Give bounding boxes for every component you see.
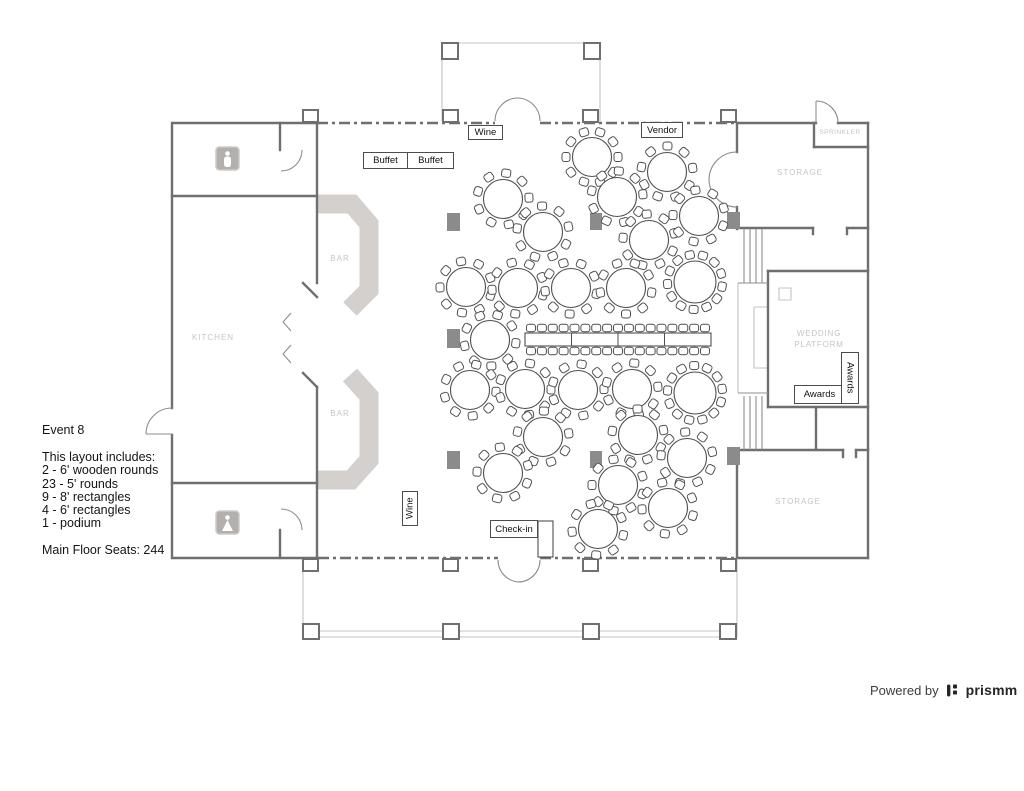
porch-post	[443, 559, 458, 571]
chair	[654, 258, 666, 269]
chair	[478, 449, 490, 461]
chair	[485, 217, 497, 228]
chair	[547, 301, 559, 313]
chair	[485, 369, 497, 381]
chair	[663, 279, 672, 289]
round-table-5ft[interactable]	[513, 202, 574, 262]
chair	[690, 324, 699, 332]
chair	[565, 166, 577, 178]
check-in-table-label[interactable]: Check-in	[490, 520, 538, 538]
table-top	[447, 268, 486, 307]
chair	[660, 529, 670, 538]
chair	[707, 446, 717, 457]
chair	[663, 433, 675, 445]
chair	[618, 530, 628, 541]
table-top	[499, 269, 538, 308]
table-top	[674, 261, 716, 303]
round-table-5ft[interactable]	[473, 169, 533, 230]
chair	[701, 363, 713, 374]
table-top	[579, 510, 618, 549]
chair	[646, 347, 655, 355]
chair	[668, 324, 677, 332]
table-top	[559, 371, 598, 410]
chair	[684, 415, 694, 425]
door-or-stair	[283, 345, 291, 363]
chair	[701, 301, 713, 312]
table-top	[484, 180, 523, 219]
chair	[705, 464, 716, 476]
chair	[657, 478, 668, 488]
porch-outline	[303, 560, 737, 637]
room-label-storage-bottom: STORAGE	[763, 497, 833, 506]
chair	[611, 362, 623, 374]
chair	[468, 411, 478, 420]
chair	[440, 298, 452, 310]
table-top	[613, 370, 652, 409]
chair	[697, 414, 708, 424]
table-top	[648, 153, 687, 192]
chair	[689, 305, 698, 313]
chair	[506, 406, 518, 417]
chair	[717, 282, 726, 292]
door-or-stair	[709, 152, 737, 180]
chair	[679, 324, 688, 332]
table-top	[573, 138, 612, 177]
chair	[559, 445, 571, 457]
pillar	[447, 329, 460, 348]
chair	[622, 310, 631, 318]
event-info-panel: Event 8 This layout includes: 2 - 6' woo…	[42, 424, 164, 558]
chair	[690, 361, 699, 369]
table-top	[599, 466, 638, 505]
table-top	[524, 213, 563, 252]
chair	[570, 347, 579, 355]
table-top	[552, 269, 591, 308]
chair	[603, 302, 615, 314]
porch-outline	[442, 43, 600, 121]
chair	[637, 302, 649, 314]
chair	[696, 431, 708, 443]
chair	[456, 257, 466, 267]
round-table-5ft[interactable]	[596, 258, 657, 318]
chair	[603, 347, 612, 355]
chair	[457, 308, 467, 317]
chair	[570, 324, 579, 332]
chair	[614, 153, 622, 162]
pillar	[727, 212, 740, 229]
layout-item-podium: 1 - podium	[42, 517, 164, 530]
chair	[501, 169, 511, 178]
chair	[637, 471, 648, 482]
awards-table-label-vertical[interactable]: Awards	[841, 352, 859, 404]
chair	[559, 324, 568, 332]
chair	[598, 269, 609, 281]
chair	[607, 136, 619, 148]
door-or-stair	[498, 560, 520, 582]
chair	[588, 481, 596, 490]
chair	[513, 223, 522, 233]
chair	[688, 510, 698, 521]
chair	[511, 338, 520, 348]
chair	[680, 428, 690, 437]
table-top	[451, 371, 490, 410]
room-label-storage-top: STORAGE	[765, 168, 835, 177]
chair	[565, 310, 574, 318]
table-top	[506, 370, 545, 409]
chair	[619, 233, 628, 243]
chair	[637, 162, 647, 172]
porch-post	[443, 110, 458, 122]
pillar	[590, 213, 602, 230]
chair	[676, 524, 688, 536]
chair	[553, 206, 565, 218]
chair	[642, 454, 653, 465]
chair	[657, 347, 666, 355]
floor-plan-page: Buffet Buffet Wine Vendor Wine Check-in …	[0, 0, 1024, 791]
chair	[546, 457, 557, 467]
chair	[697, 251, 708, 261]
porch-post	[303, 624, 319, 639]
chair	[516, 175, 528, 187]
chair	[474, 203, 485, 214]
chair	[492, 310, 503, 320]
chair	[701, 347, 710, 355]
chair	[587, 185, 597, 196]
bar-counter	[317, 375, 369, 480]
pillar	[727, 447, 740, 465]
chair	[692, 476, 703, 487]
porch-post	[443, 624, 459, 639]
chair	[483, 402, 495, 414]
chair	[461, 322, 472, 334]
chair	[602, 377, 612, 388]
chair	[635, 324, 644, 332]
table-top	[484, 454, 523, 493]
floor-plan-canvas	[0, 0, 1024, 791]
main-floor-seats: Main Floor Seats: 244	[42, 544, 164, 557]
chair	[633, 405, 642, 413]
chair	[705, 233, 717, 244]
round-table-5ft[interactable]	[488, 258, 548, 319]
porch-post	[303, 559, 318, 571]
event-title: Event 8	[42, 424, 164, 437]
table-top	[649, 489, 688, 528]
wooden-round-table-6ft[interactable]	[663, 250, 727, 313]
chair	[441, 374, 452, 385]
chair	[690, 347, 699, 355]
table-top	[619, 416, 658, 455]
chair	[716, 396, 727, 407]
chair	[581, 347, 590, 355]
chair	[711, 371, 723, 383]
chair	[588, 203, 599, 215]
wall-segment	[303, 283, 317, 297]
mens-restroom-icon	[216, 147, 239, 170]
chair	[593, 400, 605, 412]
chair	[657, 324, 666, 332]
chair	[591, 551, 601, 560]
chair	[449, 406, 461, 418]
chair	[564, 221, 574, 231]
door-or-stair	[283, 313, 291, 331]
round-table-5ft[interactable]	[541, 258, 602, 318]
porch-post	[583, 559, 598, 571]
figure-head	[225, 515, 230, 520]
chair	[581, 303, 593, 315]
chair	[625, 502, 637, 513]
buffet-table-label-1[interactable]: Buffet	[363, 152, 408, 169]
chair	[574, 542, 586, 554]
chair	[558, 362, 570, 374]
chair	[578, 177, 589, 187]
long-banquet-table[interactable]	[525, 324, 711, 355]
chair	[525, 359, 535, 369]
layout-item-wooden-rounds: 2 - 6' wooden rounds	[42, 464, 164, 477]
table-top	[524, 418, 563, 457]
room-label-wedding-platform: WEDDING PLATFORM	[788, 328, 850, 350]
chair	[642, 210, 652, 219]
chair	[436, 283, 444, 292]
powered-by-text: Powered by	[870, 683, 939, 698]
chair	[646, 324, 655, 332]
chair	[664, 398, 675, 409]
chair	[559, 347, 568, 355]
chair	[629, 359, 639, 368]
chair	[608, 426, 617, 436]
chair	[547, 251, 558, 262]
chair	[664, 265, 675, 276]
porch-outline	[779, 288, 791, 300]
chair	[577, 360, 587, 369]
chair	[492, 493, 503, 503]
chair	[440, 392, 450, 403]
chair	[453, 361, 465, 372]
chair	[647, 398, 659, 410]
chair	[668, 347, 677, 355]
chair	[537, 324, 546, 332]
room-label-kitchen: KITCHEN	[178, 333, 248, 342]
chair	[666, 291, 678, 303]
chair	[629, 258, 640, 269]
round-table-5ft[interactable]	[638, 478, 698, 539]
table-top	[607, 269, 646, 308]
chair	[643, 269, 654, 281]
chair	[708, 256, 720, 268]
round-table-5ft[interactable]	[436, 257, 496, 318]
chair	[525, 193, 533, 202]
pillar	[447, 213, 460, 231]
chair	[686, 492, 697, 503]
door-or-stair	[518, 560, 540, 582]
chair	[676, 363, 688, 374]
chair	[591, 367, 603, 379]
chair	[537, 202, 546, 210]
chair	[473, 186, 483, 197]
round-table-5ft[interactable]	[548, 360, 608, 421]
prismm-brand-text[interactable]: prismm	[966, 682, 1018, 698]
chair	[643, 520, 655, 532]
chair	[575, 259, 586, 270]
chair	[548, 347, 557, 355]
table-top	[668, 439, 707, 478]
chair	[541, 286, 550, 296]
chair	[607, 544, 619, 556]
chair	[603, 324, 612, 332]
chair	[648, 409, 660, 421]
porch-post	[583, 624, 599, 639]
chair	[539, 407, 548, 415]
chair	[495, 443, 505, 452]
chair	[660, 467, 672, 479]
chair	[565, 136, 577, 148]
wooden-round-table-6ft[interactable]	[663, 361, 727, 424]
chair	[537, 347, 546, 355]
chair	[654, 382, 663, 392]
chair	[506, 320, 518, 332]
table-top	[630, 221, 669, 260]
chair	[669, 210, 677, 219]
door-or-stair	[281, 509, 302, 530]
chair	[440, 265, 452, 277]
figure-head	[225, 151, 230, 156]
chair	[638, 505, 646, 514]
chair	[657, 450, 666, 460]
pillar	[447, 451, 460, 469]
side-table[interactable]	[538, 521, 553, 557]
chair	[614, 167, 624, 176]
chair	[578, 127, 589, 137]
chair	[671, 408, 683, 420]
chair	[708, 407, 720, 419]
chair	[562, 153, 570, 162]
chair	[624, 324, 633, 332]
wall-segment	[303, 373, 317, 387]
chair	[487, 362, 496, 370]
round-table-5ft[interactable]	[669, 186, 729, 247]
round-table-5ft[interactable]	[568, 499, 629, 559]
chair	[571, 508, 583, 520]
chair	[603, 394, 614, 406]
chair	[548, 394, 559, 405]
chair	[688, 163, 697, 173]
chair	[685, 250, 695, 260]
chair	[578, 411, 588, 421]
chair	[638, 189, 647, 199]
chair	[601, 215, 612, 226]
round-table-5ft[interactable]	[513, 407, 574, 467]
round-table-5ft[interactable]	[460, 310, 521, 370]
chair	[476, 483, 488, 495]
porch-post	[583, 110, 598, 122]
powered-by-footer: Powered by prismm	[870, 682, 1017, 698]
table-top	[471, 321, 510, 360]
chair	[460, 341, 470, 352]
chair	[506, 258, 517, 268]
porch-post	[720, 624, 736, 639]
womens-restroom-icon	[216, 511, 239, 534]
chair	[548, 376, 558, 387]
chair	[548, 324, 557, 332]
chair	[527, 324, 536, 332]
wine-table-label-top[interactable]: Wine	[468, 125, 503, 140]
chair	[678, 146, 690, 158]
chair	[596, 287, 605, 297]
chair	[539, 367, 551, 379]
room-label-sprinkler: SPRINKLER	[812, 129, 868, 136]
wall-segment	[172, 435, 318, 558]
chair	[701, 324, 710, 332]
awards-table-label-horizontal[interactable]: Awards	[794, 385, 845, 404]
layout-item-rounds: 23 - 5' rounds	[42, 478, 164, 491]
chair	[564, 428, 573, 438]
table-top	[680, 197, 719, 236]
chair	[592, 347, 601, 355]
chair	[663, 142, 672, 150]
chair	[558, 258, 569, 268]
chair	[592, 324, 601, 332]
porch-post	[303, 110, 318, 122]
chair	[608, 455, 618, 464]
chair	[595, 127, 606, 137]
chair	[639, 179, 650, 191]
chair	[719, 202, 729, 213]
chair	[647, 287, 656, 297]
chair	[612, 258, 623, 269]
table-top	[674, 372, 716, 414]
vendor-table-label[interactable]: Vendor	[641, 122, 683, 138]
room-label-bar-bottom: BAR	[320, 409, 360, 418]
porch-post	[442, 43, 458, 59]
chair	[527, 347, 536, 355]
chair	[635, 347, 644, 355]
chair	[711, 293, 723, 305]
chair	[614, 324, 623, 332]
chair	[495, 392, 505, 403]
chair	[614, 347, 623, 355]
chair	[488, 285, 497, 295]
door-or-stair	[517, 98, 540, 121]
chair	[568, 527, 577, 537]
chair	[610, 442, 621, 454]
chair	[527, 304, 539, 316]
chair	[529, 252, 540, 262]
chair	[510, 309, 520, 318]
chair	[658, 213, 670, 225]
door-or-stair	[495, 98, 518, 121]
chair	[652, 191, 663, 202]
chair	[663, 386, 672, 396]
chair	[515, 240, 527, 252]
porch-outline	[754, 307, 768, 368]
wall-segment	[172, 123, 318, 408]
chair	[666, 372, 678, 384]
buffet-table-label-2[interactable]: Buffet	[407, 152, 454, 169]
wine-table-label-bottom[interactable]: Wine	[402, 491, 418, 526]
chair	[675, 300, 687, 311]
porch-post	[721, 559, 736, 571]
chair	[659, 425, 669, 435]
porch-post	[721, 110, 736, 122]
chair	[716, 268, 726, 279]
chair	[483, 171, 495, 183]
table-top	[598, 178, 637, 217]
chair	[718, 384, 727, 394]
chair	[560, 238, 571, 250]
chair	[581, 324, 590, 332]
room-label-bar-top: BAR	[320, 254, 360, 263]
chair	[718, 220, 729, 231]
chair	[495, 374, 506, 385]
